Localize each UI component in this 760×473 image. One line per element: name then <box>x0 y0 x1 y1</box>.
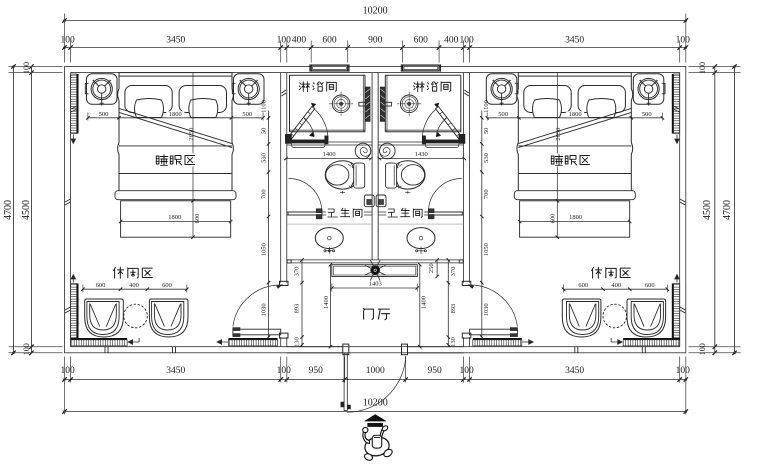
svg-text:1050: 1050 <box>260 243 267 256</box>
svg-text:893: 893 <box>293 304 300 314</box>
svg-text:3450: 3450 <box>166 36 185 46</box>
svg-text:100: 100 <box>277 366 292 376</box>
svg-text:2050: 2050 <box>188 128 195 141</box>
svg-text:600: 600 <box>414 36 429 46</box>
svg-text:4500: 4500 <box>702 200 713 220</box>
svg-text:50: 50 <box>260 128 267 135</box>
svg-text:893: 893 <box>450 304 457 314</box>
svg-text:500: 500 <box>642 111 652 118</box>
svg-text:500: 500 <box>498 111 508 118</box>
svg-text:400: 400 <box>292 36 307 46</box>
svg-text:100: 100 <box>60 366 75 376</box>
svg-text:600: 600 <box>162 282 172 289</box>
svg-text:130: 130 <box>450 337 457 347</box>
svg-text:3450: 3450 <box>565 36 584 46</box>
svg-text:370: 370 <box>293 267 300 277</box>
svg-text:530: 530 <box>260 153 267 163</box>
svg-text:1800: 1800 <box>569 214 582 221</box>
svg-text:4700: 4700 <box>722 200 733 220</box>
svg-text:1800: 1800 <box>169 111 182 118</box>
svg-text:900: 900 <box>368 36 383 46</box>
svg-text:400: 400 <box>444 36 459 46</box>
svg-text:1100: 1100 <box>260 100 267 113</box>
svg-text:400: 400 <box>129 282 139 289</box>
svg-text:100: 100 <box>459 366 474 376</box>
svg-text:10200: 10200 <box>363 5 388 16</box>
svg-text:500: 500 <box>99 111 109 118</box>
svg-text:600: 600 <box>549 214 556 224</box>
svg-text:100: 100 <box>676 366 691 376</box>
svg-text:370: 370 <box>450 267 457 277</box>
svg-text:1030: 1030 <box>483 303 490 316</box>
svg-text:600: 600 <box>578 282 588 289</box>
svg-text:130: 130 <box>293 337 300 347</box>
svg-text:1400: 1400 <box>420 296 427 309</box>
svg-text:2050: 2050 <box>555 128 562 141</box>
svg-text:1800: 1800 <box>569 111 582 118</box>
svg-text:100: 100 <box>698 62 707 74</box>
svg-text:530: 530 <box>483 153 490 163</box>
svg-text:4500: 4500 <box>21 200 32 220</box>
svg-text:600: 600 <box>322 36 337 46</box>
svg-text:700: 700 <box>483 189 490 199</box>
svg-text:100: 100 <box>459 36 474 46</box>
svg-text:3450: 3450 <box>166 366 185 376</box>
svg-text:1400: 1400 <box>323 151 336 158</box>
svg-text:100: 100 <box>22 62 31 74</box>
svg-text:950: 950 <box>309 366 324 376</box>
svg-text:400: 400 <box>611 282 621 289</box>
svg-text:1100: 1100 <box>483 100 490 113</box>
svg-text:250: 250 <box>428 263 435 273</box>
svg-text:1000: 1000 <box>366 366 385 376</box>
svg-text:1403: 1403 <box>369 280 382 287</box>
svg-text:1430: 1430 <box>415 151 428 158</box>
svg-text:600: 600 <box>645 282 655 289</box>
svg-text:600: 600 <box>194 214 201 224</box>
svg-text:1050: 1050 <box>483 243 490 256</box>
svg-text:1800: 1800 <box>168 214 181 221</box>
svg-text:950: 950 <box>427 366 442 376</box>
svg-text:100: 100 <box>698 343 707 355</box>
svg-text:100: 100 <box>676 36 691 46</box>
svg-text:100: 100 <box>60 36 75 46</box>
svg-text:700: 700 <box>260 189 267 199</box>
svg-text:3450: 3450 <box>565 366 584 376</box>
svg-text:100: 100 <box>277 36 292 46</box>
svg-text:500: 500 <box>242 111 252 118</box>
svg-text:600: 600 <box>96 282 106 289</box>
svg-text:1400: 1400 <box>323 296 330 309</box>
svg-text:100: 100 <box>22 343 31 355</box>
svg-text:4700: 4700 <box>3 200 14 220</box>
svg-text:1030: 1030 <box>260 303 267 316</box>
svg-text:50: 50 <box>483 128 490 135</box>
